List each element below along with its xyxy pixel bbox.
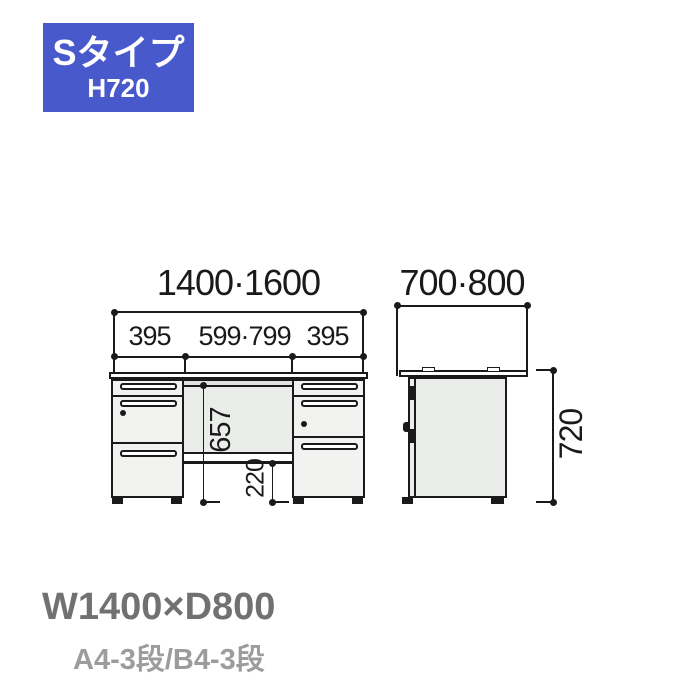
product-dimension-diagram: Sタイプ H720 1400·1600 395 599·799 395 bbox=[0, 0, 700, 700]
desk-foot bbox=[293, 497, 304, 504]
keyhole-dot bbox=[301, 421, 307, 427]
drawer-handle bbox=[301, 443, 358, 450]
desk-foot bbox=[402, 497, 413, 504]
dimension-tick bbox=[536, 501, 553, 503]
badge-height-label: H720 bbox=[87, 73, 149, 103]
front-clearance-height-label: 220 bbox=[244, 439, 269, 519]
keyhole-dot bbox=[120, 410, 126, 416]
front-inner-height-label: 657 bbox=[206, 390, 236, 470]
front-width-center-label: 599·799 bbox=[199, 321, 279, 352]
pedestal-side-body bbox=[408, 377, 507, 498]
dimension-line bbox=[397, 305, 527, 307]
modesty-panel bbox=[184, 387, 292, 454]
size-summary-label: W1400×D800 bbox=[42, 586, 275, 629]
lock-knob bbox=[403, 422, 409, 432]
dimension-dot bbox=[269, 460, 276, 467]
drawer-handle bbox=[120, 383, 177, 390]
desktop-seam-notch bbox=[422, 367, 435, 372]
drawer-divider bbox=[293, 395, 364, 397]
drawer-divider bbox=[112, 442, 183, 444]
drawer-handle bbox=[301, 400, 358, 407]
desk-foot bbox=[352, 497, 363, 504]
dimension-line bbox=[114, 311, 363, 313]
front-width-total-label: 1400·1600 bbox=[118, 262, 359, 304]
extension-line bbox=[362, 312, 364, 379]
dimension-line bbox=[114, 356, 363, 358]
drawer-gap-mark bbox=[410, 386, 414, 400]
extension-line bbox=[113, 312, 115, 379]
desk-foot bbox=[491, 497, 504, 504]
dimension-line bbox=[272, 463, 274, 502]
desk-top-front bbox=[109, 372, 368, 379]
dimension-dot bbox=[200, 382, 207, 389]
drawer-divider bbox=[112, 395, 183, 397]
front-width-left-label: 395 bbox=[110, 321, 190, 352]
dimension-tick bbox=[273, 501, 289, 503]
drawer-handle bbox=[301, 383, 358, 390]
side-depth-label: 700·800 bbox=[382, 262, 542, 304]
desk-top-side bbox=[399, 370, 528, 377]
drawer-gap-mark bbox=[410, 429, 414, 443]
drawer-config-label: A4-3段/B4-3段 bbox=[73, 636, 265, 678]
type-badge: Sタイプ H720 bbox=[43, 23, 194, 112]
extension-line bbox=[526, 306, 528, 376]
side-height-label: 720 bbox=[555, 394, 587, 474]
dimension-tick bbox=[204, 501, 220, 503]
front-width-right-label: 395 bbox=[288, 321, 368, 352]
badge-type-label: Sタイプ bbox=[52, 33, 184, 73]
desktop-seam-notch bbox=[487, 367, 500, 372]
drawer-divider bbox=[293, 436, 364, 438]
desk-foot bbox=[171, 497, 182, 504]
drawer-handle bbox=[120, 450, 177, 457]
extension-line bbox=[396, 306, 398, 376]
drawer-handle bbox=[120, 400, 177, 407]
desk-foot bbox=[112, 497, 123, 504]
pedestal-front-edge-line bbox=[414, 379, 416, 496]
dimension-tick bbox=[536, 369, 553, 371]
